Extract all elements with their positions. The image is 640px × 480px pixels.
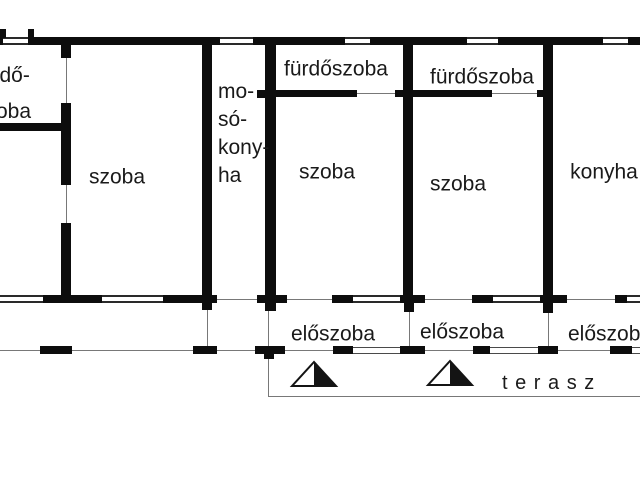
room-label-laundry-kitchen: mo- só- kony- ha <box>218 78 269 190</box>
room-label-hallway1: előszoba <box>291 324 375 345</box>
room-label-kitchen: konyha <box>570 162 638 183</box>
floor-plan: fürdő- szoba szoba mo- só- kony- ha fürd… <box>0 0 640 480</box>
room-label-line: só- <box>218 106 269 134</box>
room-label-line: kony- <box>218 134 269 162</box>
room-label-line: ha <box>218 162 269 190</box>
room-label-hallway2: előszoba <box>420 322 504 343</box>
room-label-line: mo- <box>218 78 269 106</box>
room-label-line: fürdő- <box>0 58 31 94</box>
room-label-room1: szoba <box>89 167 145 188</box>
room-label-hallway3: előszoba <box>568 324 640 345</box>
room-label-room3: szoba <box>430 174 486 195</box>
room-label-terrace: t e r a s z <box>502 373 595 393</box>
room-label-bathroom2: fürdőszoba <box>430 67 534 88</box>
room-label-bathroom-top-left: fürdő- szoba <box>0 58 31 130</box>
room-label-room2: szoba <box>299 162 355 183</box>
room-label-bathroom1: fürdőszoba <box>284 59 388 80</box>
room-label-line: szoba <box>0 94 31 130</box>
